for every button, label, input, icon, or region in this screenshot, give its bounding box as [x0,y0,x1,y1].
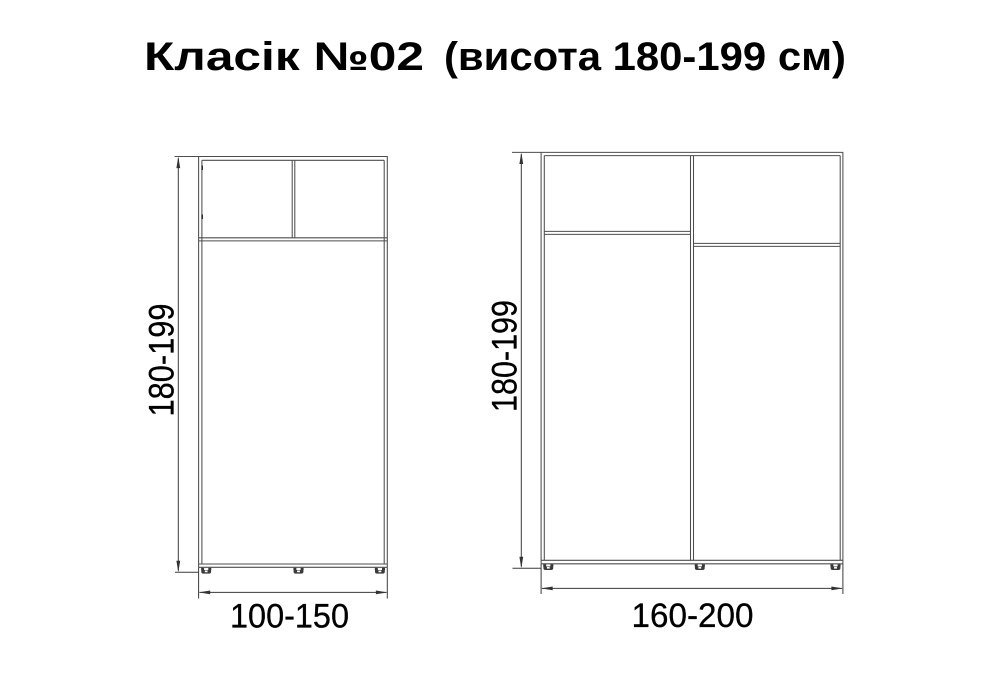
svg-text:160-200: 160-200 [632,597,754,635]
svg-text:Класік №02: Класік №02 [144,35,424,79]
svg-text:180-199: 180-199 [486,300,525,412]
svg-text:100-150: 100-150 [230,598,349,636]
svg-text:180-199: 180-199 [143,304,182,417]
svg-text:(висота 180-199 см): (висота 180-199 см) [444,35,846,79]
